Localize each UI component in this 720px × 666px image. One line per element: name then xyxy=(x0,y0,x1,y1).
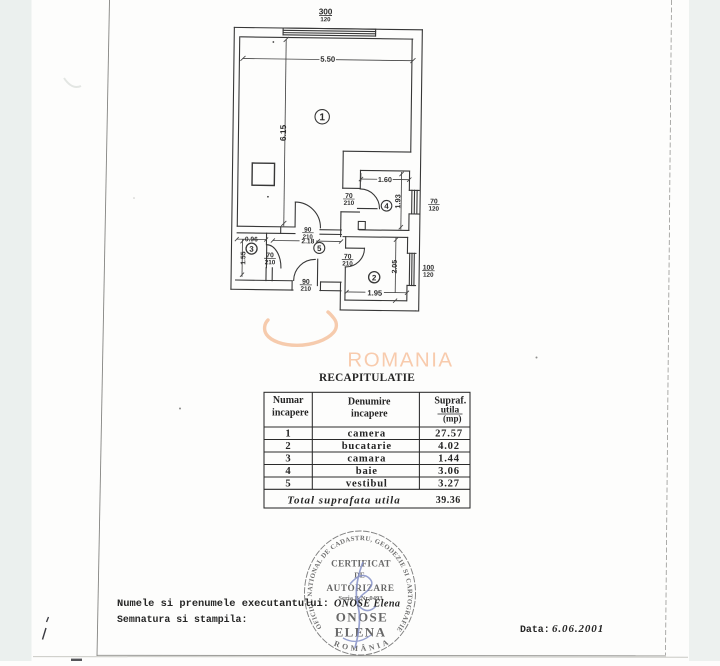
svg-text:2.18: 2.18 xyxy=(301,238,314,245)
svg-text:bucatarie: bucatarie xyxy=(342,441,392,452)
svg-text:1: 1 xyxy=(319,112,325,123)
svg-text:120: 120 xyxy=(320,17,331,23)
svg-text:ELENA: ELENA xyxy=(335,625,387,640)
svg-text:210: 210 xyxy=(265,259,276,266)
svg-text:Numele si prenumele executantu: Numele si prenumele executantului: xyxy=(117,598,329,610)
svg-text:210: 210 xyxy=(342,261,353,268)
svg-text:4.02: 4.02 xyxy=(438,441,460,452)
svg-text:4: 4 xyxy=(384,202,389,211)
svg-text:3.06: 3.06 xyxy=(438,466,460,477)
svg-text:120: 120 xyxy=(428,206,439,213)
svg-text:210: 210 xyxy=(301,286,312,293)
svg-text:vestibul: vestibul xyxy=(346,479,388,490)
svg-text:Numar: Numar xyxy=(273,395,304,406)
svg-text:0.96: 0.96 xyxy=(245,236,258,243)
svg-text:ROMÂNIA: ROMÂNIA xyxy=(0,0,408,653)
svg-text:AUTORIZARE: AUTORIZARE xyxy=(326,583,394,593)
svg-text:5.50: 5.50 xyxy=(320,55,335,64)
svg-text:baie: baie xyxy=(356,466,378,477)
svg-text:5: 5 xyxy=(317,244,322,253)
svg-text:1: 1 xyxy=(285,429,290,440)
svg-text:3.27: 3.27 xyxy=(438,479,460,490)
svg-text:5: 5 xyxy=(285,479,290,490)
svg-text:Semnatura si stampila:: Semnatura si stampila: xyxy=(117,614,247,625)
svg-text:1.95: 1.95 xyxy=(367,288,383,297)
svg-text:1.60: 1.60 xyxy=(378,175,392,184)
svg-text:RECAPITULATIE: RECAPITULATIE xyxy=(319,372,415,384)
svg-text:2.05: 2.05 xyxy=(392,260,399,274)
svg-text:Data:: Data: xyxy=(520,624,550,635)
svg-text:1.55: 1.55 xyxy=(240,251,247,265)
svg-text:incapere: incapere xyxy=(272,407,309,418)
svg-text:3: 3 xyxy=(249,245,254,254)
svg-text:2: 2 xyxy=(372,273,377,282)
svg-text:Total suprafata utila: Total suprafata utila xyxy=(287,494,401,506)
svg-text:1.44: 1.44 xyxy=(438,454,460,465)
svg-text:ONOSE: ONOSE xyxy=(336,610,389,625)
svg-text:39.36: 39.36 xyxy=(436,495,461,506)
svg-text:camera: camera xyxy=(348,429,386,440)
svg-text:6.15: 6.15 xyxy=(278,124,288,141)
svg-text:6.06.2001: 6.06.2001 xyxy=(552,623,604,635)
svg-text:120: 120 xyxy=(423,272,434,279)
svg-text:ONOSE Elena: ONOSE Elena xyxy=(334,599,400,610)
svg-text:4: 4 xyxy=(285,466,291,477)
svg-text:27.57: 27.57 xyxy=(435,429,463,440)
svg-text:camara: camara xyxy=(347,454,386,465)
svg-text:(mp): (mp) xyxy=(443,414,462,424)
svg-text:Denumire: Denumire xyxy=(348,397,391,408)
svg-text:OFICIUL NATIONAL DE CADASTRU,: OFICIUL NATIONAL DE CADASTRU, GEODEZIE S… xyxy=(0,0,413,633)
svg-text:2: 2 xyxy=(285,441,290,452)
svg-text:1.93: 1.93 xyxy=(393,194,402,209)
svg-text:ROMANIA: ROMANIA xyxy=(347,349,453,372)
svg-text:210: 210 xyxy=(344,200,355,207)
svg-text:3: 3 xyxy=(285,454,290,465)
svg-text:incapere: incapere xyxy=(351,408,388,419)
